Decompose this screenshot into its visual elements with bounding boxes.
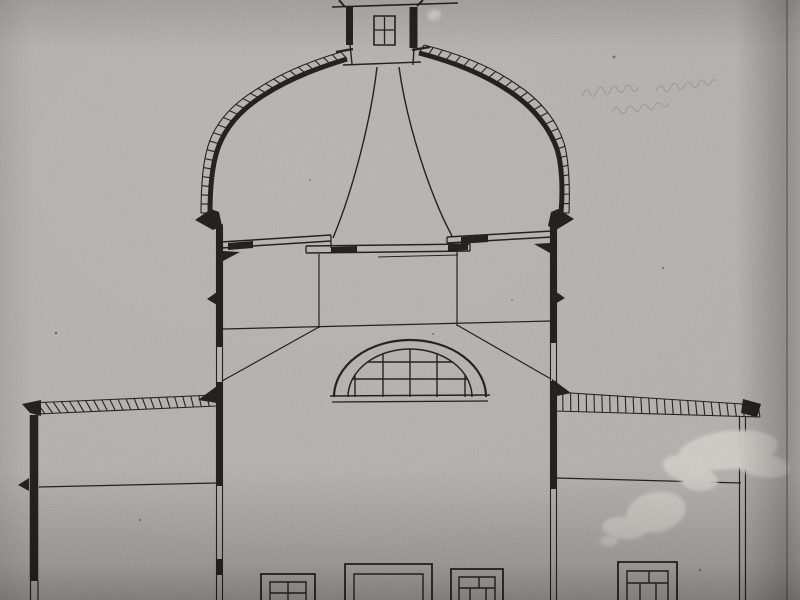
- photographed-architectural-drawing: [0, 0, 800, 600]
- photo-grain-overlay: [0, 0, 800, 600]
- grain-texture: [0, 0, 800, 600]
